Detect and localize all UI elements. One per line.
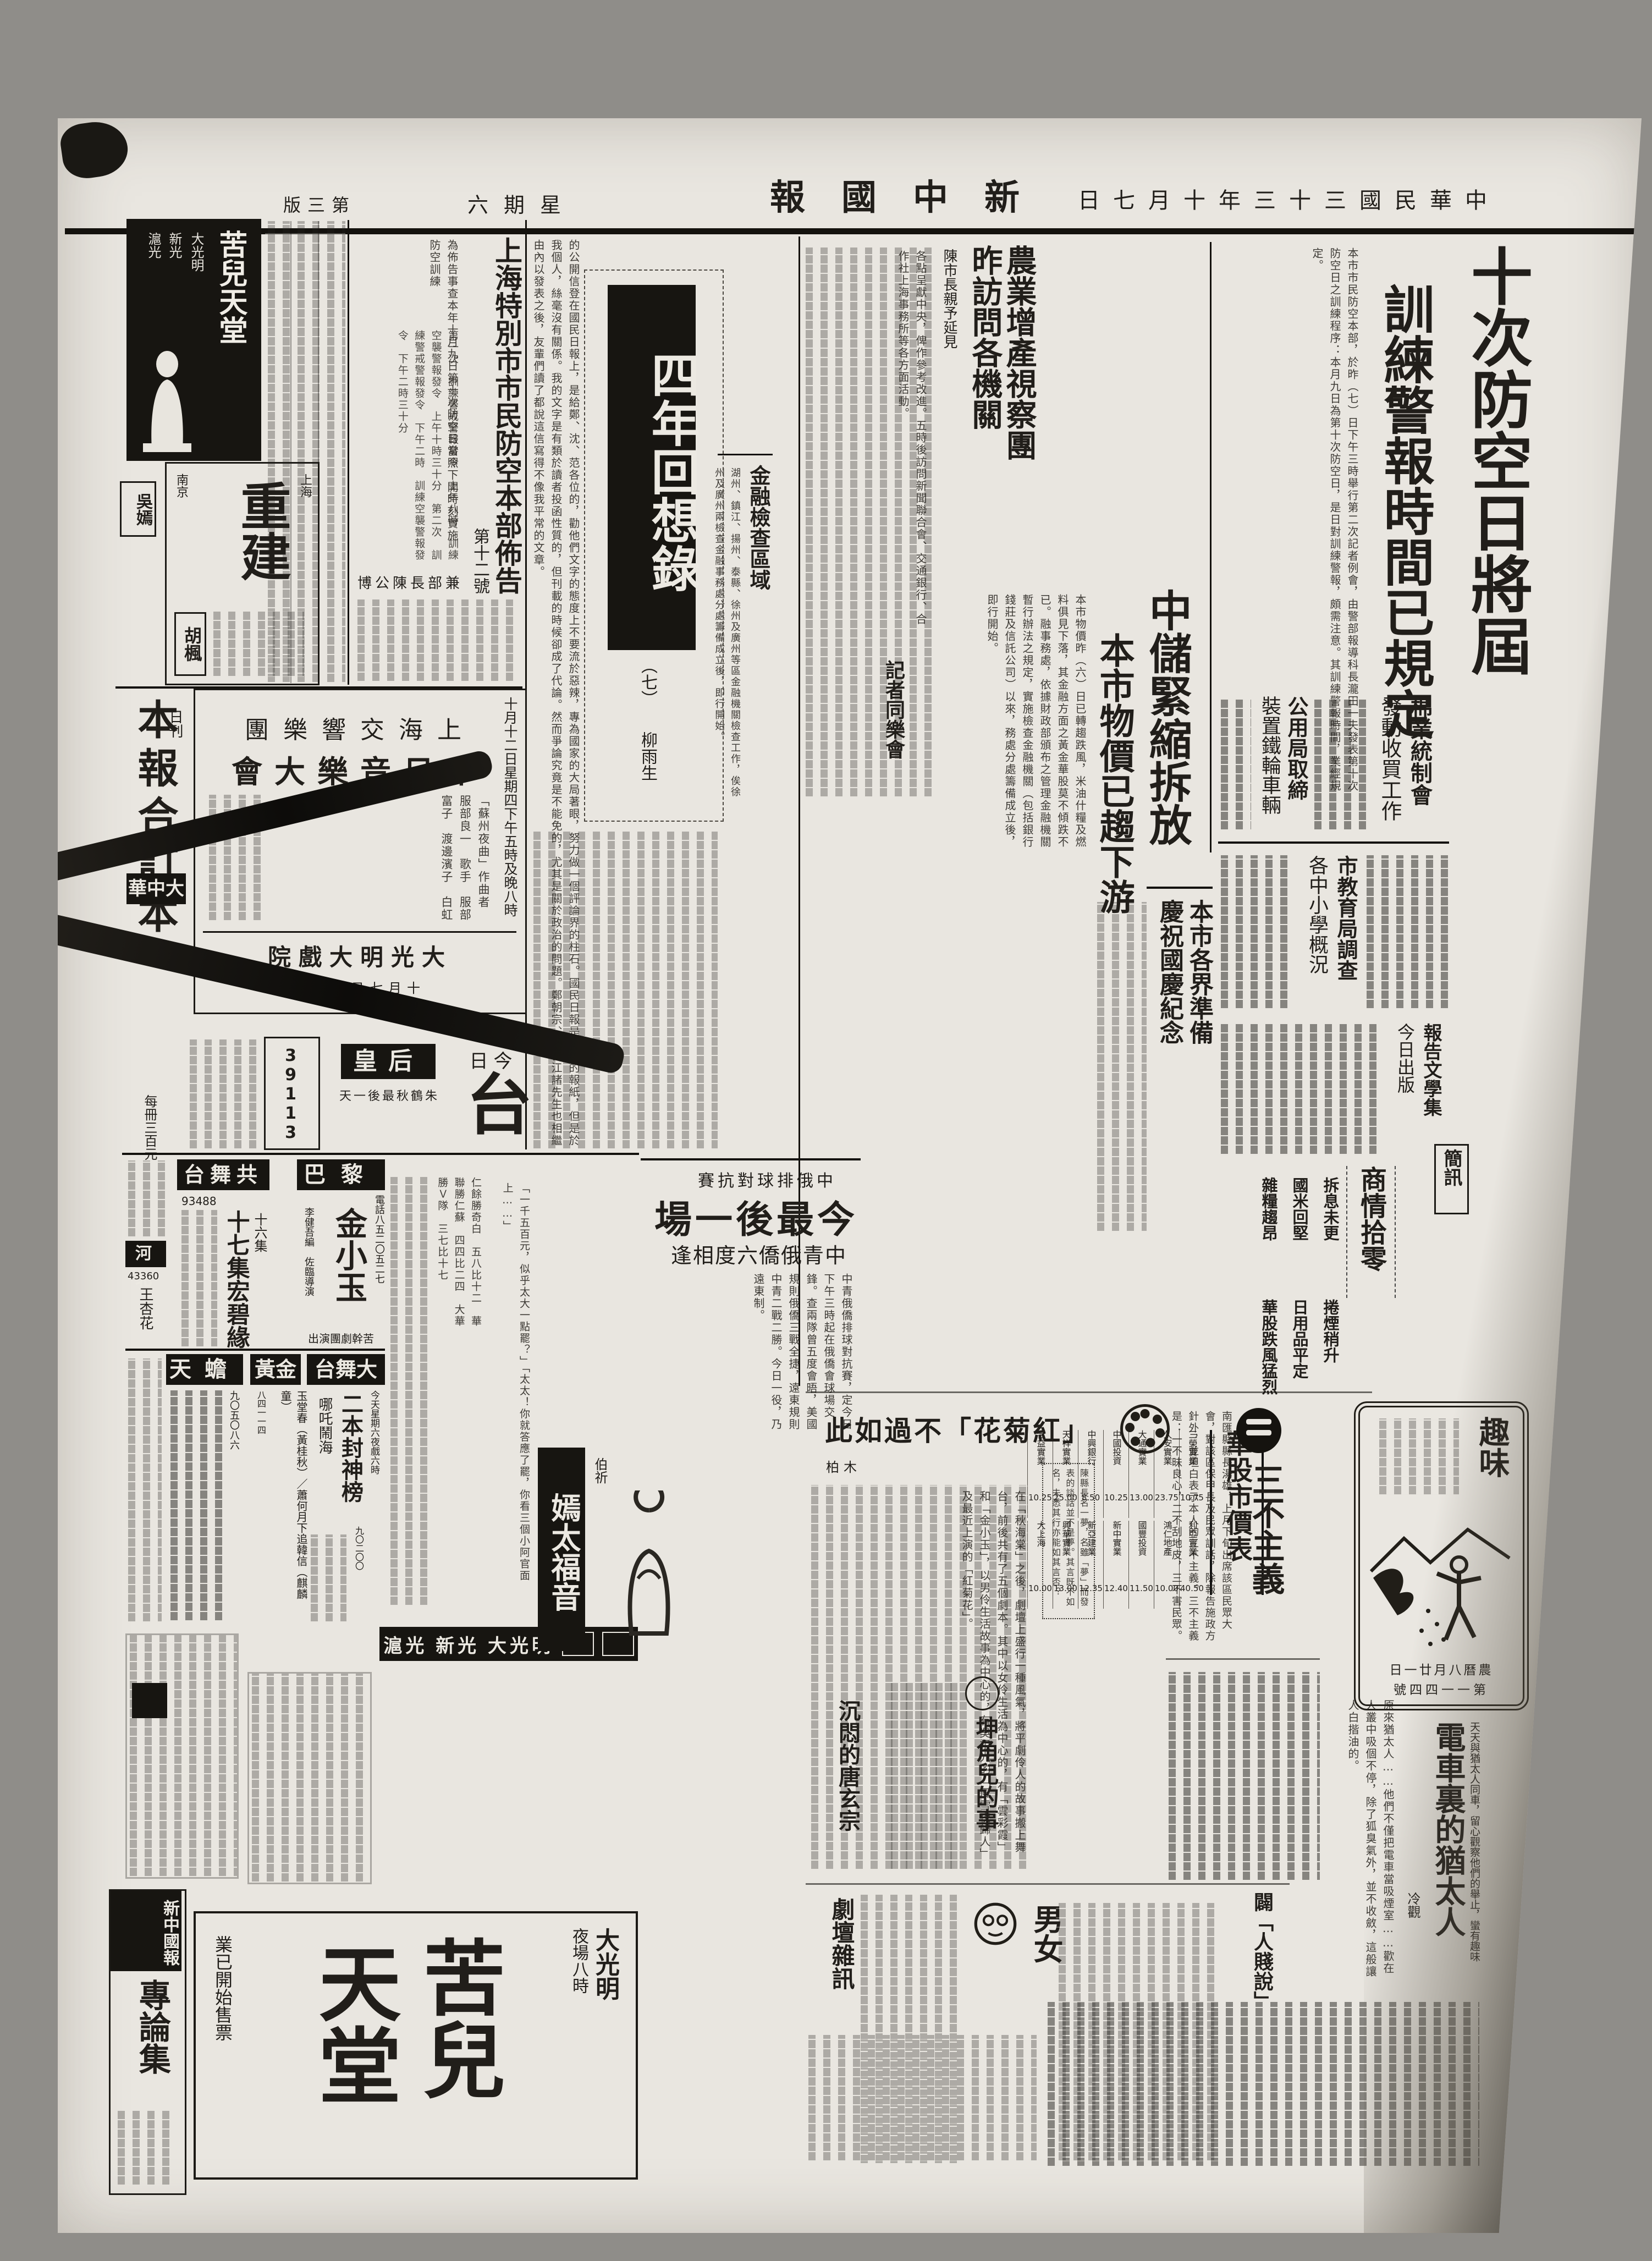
hebei-label: 河北: [125, 1241, 166, 1267]
stock-row: 國豐投資11.50: [1128, 1521, 1154, 1609]
market-item: 國米回堅: [1288, 1177, 1311, 1287]
chongjian-texture: [211, 611, 304, 677]
ad-texture: [125, 1160, 165, 1237]
section-rule: [806, 1391, 1372, 1393]
concert-rule: [203, 931, 516, 933]
section-rule: [806, 1883, 1290, 1885]
bottom-movie-theater: 大光明: [587, 1928, 623, 2016]
dawutai-label: 台舞大: [307, 1354, 385, 1385]
memoir-title: 四年回想錄: [608, 285, 696, 650]
corner-ink-stain: [58, 118, 131, 181]
paris-play: 金小玉: [326, 1207, 372, 1323]
actress-illustration: [134, 344, 200, 454]
section-rule: [125, 1349, 385, 1351]
market-item: 拆息未更: [1319, 1177, 1342, 1287]
torn-edge-shadow: [1364, 522, 1642, 2233]
zhuanlunji-ad: 新中國報 專論集: [109, 1889, 186, 2195]
serial-illustration: [605, 1490, 693, 1644]
stock-name: 國豐投資: [1135, 1521, 1148, 1581]
section-rule: [122, 1153, 639, 1155]
stage-big-char: 台: [466, 1070, 521, 1142]
zhongchu-headline: 中儲緊縮拆放: [1143, 588, 1190, 880]
memoir-author: 柳雨生: [635, 731, 659, 803]
volleyball-subhead: 逢相度六僑俄青中: [663, 1239, 855, 1269]
section-rule: [718, 454, 773, 455]
memoir-part: （七）: [635, 657, 659, 723]
section-rule: [1166, 1658, 1320, 1660]
volleyball-scores: 仁餘勝奇白 五八比十二 華聯勝仁蘇 四四比二四 大華勝Ｖ隊 三七比十七: [434, 1177, 484, 1336]
zhuanlunji-title: 專論集: [129, 1979, 175, 2105]
star-card-hufeng: 胡楓: [174, 612, 206, 676]
queen-theater-label: 皇后: [341, 1044, 436, 1079]
paris-label: 巴黎: [297, 1159, 385, 1190]
tianchan-label: 天蟾: [166, 1354, 243, 1385]
zhuanlunji-texture: [115, 2111, 177, 2186]
bottom-texture: [806, 2035, 1037, 2161]
movie-ad-title: 苦兒天堂: [210, 230, 251, 384]
paris-troupe-line: 出演團劇幹苦: [297, 1330, 385, 1346]
cinema-strip: 滬光新光大光明: [379, 1627, 638, 1661]
section-rule: [641, 1158, 861, 1160]
serial-title: 嫣太福音: [538, 1448, 585, 1651]
tianchan-phone: 九〇五〇八六: [227, 1390, 241, 1473]
ad-black-box: [132, 1683, 167, 1718]
ad-texture: [187, 1039, 258, 1149]
movie-ad-theater-1: 大光明: [187, 232, 206, 298]
volleyball-kicker: 賽抗對球排俄中: [679, 1167, 855, 1191]
brief-utility-title: 公用局取締: [1281, 696, 1312, 822]
section-rule: [1147, 887, 1213, 889]
press-party-title: 記者同樂會: [879, 660, 907, 792]
column-rule: [1210, 242, 1212, 852]
kunjue-texture: [888, 1683, 965, 1870]
stock-price: 13.00: [1130, 1493, 1153, 1503]
star-card-wuyan: 吳嫣: [120, 481, 156, 537]
huangjin-label: 黃金: [250, 1354, 301, 1385]
ad-texture: [308, 1534, 346, 1622]
note-text: 陳縣長名一夢，名雖「夢」而發表的談話並不是夢。其言既不如名，未悉其行亦能如其言否…: [1047, 1468, 1091, 1614]
market-item-list: 拆息未更國米回堅雜糧趨昂捲煙稍升日用品平定華股跌風猛烈: [1232, 1177, 1342, 1413]
gongwutai-phone: 93488: [181, 1195, 217, 1208]
huangjin-phone: 八四一一四: [254, 1390, 267, 1478]
column-logo: [1236, 1408, 1281, 1453]
masthead-weekday: 六期星: [467, 188, 599, 218]
brief-body-texture: [1218, 855, 1295, 1009]
movie-ad-kuertiantang: 苦兒天堂 大光明 新光 滬光: [126, 219, 261, 461]
chongjian-city-left: 南京: [172, 474, 190, 529]
car-hire-phone: 39113: [281, 1046, 300, 1140]
gongwutai-texture: [179, 1210, 217, 1347]
ad-texture-box: [247, 1672, 372, 1884]
movie-ad-chongjian: 重建 上海 南京 胡楓: [165, 462, 320, 685]
chongjian-city-right: 上海: [296, 474, 313, 529]
memoir-texture: [531, 830, 718, 1149]
agri-deck: 陳市長親予延見: [939, 249, 960, 469]
nannv-texture: [1056, 1903, 1221, 2161]
kunjue-icon: [965, 1676, 999, 1710]
hebei-star: 王杏花: [135, 1287, 156, 1347]
brief-body-texture: [1218, 1023, 1383, 1155]
movie-ad-theater-3: 滬光: [144, 232, 163, 287]
huangjin-plays: 玉堂春（黃桂秋）／蕭何月下追韓信（麒麟童）: [278, 1390, 310, 1610]
bottom-movie-time: 夜場八時: [566, 1928, 591, 2016]
fincheck-title: 金融檢查區域: [744, 465, 774, 619]
national-day-subtitle: 慶祝國慶紀念: [1152, 899, 1187, 1064]
sanbu-title: 三不主義: [1242, 1463, 1290, 1622]
market-item: 雜糧趨昂: [1257, 1177, 1280, 1287]
ad-texture-box: [125, 1633, 239, 1879]
zhongchu-body: 本市物價昨（六）日已轉趨跌風，米油什糧及燃料俱見下落，其金融方面之黃金華股莫不傾…: [1015, 594, 1089, 858]
zhuanlunji-brand: 新中國報: [111, 1891, 181, 1971]
chrysanthemum-icon: [1117, 1401, 1172, 1456]
brief-body-texture: [1312, 698, 1372, 830]
paris-credits: 李健吾編 佐臨導演: [301, 1207, 316, 1317]
newspaper-sheet: 日七月十年三十三國民華中 報國中新 六期星 版三第 十次防空日將屆 訓練警報時間…: [58, 118, 1642, 2233]
benbao-ad-note: 日刊: [165, 709, 185, 770]
dawutai-play2: 哪吒鬧海: [315, 1397, 335, 1474]
movie-ad-theater-2: 新光: [165, 232, 184, 287]
face-icon: [972, 1901, 1018, 1947]
masthead-title: 報國中新: [770, 169, 1067, 222]
serial-texture: [388, 1177, 432, 1606]
paris-phone: 電話八五二〇五二七: [372, 1195, 386, 1299]
stock-price: 12.40: [1104, 1583, 1128, 1593]
brief-education-subtitle: 各中小學概況: [1302, 855, 1331, 998]
chongjian-title: 重建: [225, 480, 298, 601]
gongwutai-label: 台舞共: [177, 1159, 269, 1190]
stock-name: 新中實業: [1110, 1521, 1123, 1581]
dawutai-time: 今天星期六夜戲六時: [367, 1390, 381, 1517]
zhongchu-subhead: 本市物價已趨下游: [1093, 632, 1134, 995]
bottom-movie-note: 業已開始售票: [210, 1935, 235, 2089]
agri-subhead: 昨訪問各機關: [962, 245, 1007, 553]
pi-title: 闢「人賤說」: [1247, 1892, 1276, 2035]
gongwutai-line: 十六集: [250, 1213, 269, 1279]
serial-body: 「一千五百元，似乎太大一點罷？」「太太！你就答應了罷，你看三個小阿官面上……」: [484, 1182, 532, 1617]
bottom-movie-title-right: 苦兒: [416, 1935, 498, 2150]
column-rule: [348, 220, 349, 685]
stock-price: 11.50: [1130, 1583, 1153, 1593]
tianchan-texture: [168, 1390, 223, 1621]
hebei-phone: 43360: [128, 1270, 159, 1282]
kunjue-title: 坤角兒的事: [969, 1716, 1003, 1859]
queen-tagline: 天一後最秋鶴朱: [329, 1086, 450, 1104]
dazhonghua-ad: 華中大: [126, 873, 186, 904]
volleyball-headline: 場一後最今: [652, 1189, 861, 1244]
agri-body: 各點呈獻中央，俾作參考改進。五時後訪問新聞聯合會、交通銀行、合作社上海事務所等各…: [814, 250, 929, 635]
concert-org: 團樂響交海上: [228, 710, 492, 745]
cinema-strip-name: 新光: [436, 1631, 480, 1658]
bulletin-signer: 博公陳長部兼: [357, 572, 511, 592]
brief-education-title: 市教育局調查: [1331, 855, 1361, 998]
review-author: 柏木: [826, 1456, 861, 1476]
review-headline: 此如過不「花菊紅」: [825, 1409, 1111, 1449]
brief-utility-subtitle: 裝置鐵輪車輛: [1255, 696, 1284, 839]
bottom-movie-title-left: 天堂: [311, 1941, 394, 2155]
cinema-strip-name: 滬光: [383, 1631, 427, 1658]
dawutai-phone: 九〇二〇〇: [352, 1526, 365, 1598]
car-hire-ad: 39113: [264, 1037, 320, 1150]
movie-ad-bottom: 大光明 夜場八時 苦兒 天堂 業已開始售票: [194, 1911, 638, 2180]
brief-body-texture: [1218, 698, 1251, 830]
ad-texture: [125, 1358, 162, 1622]
dawutai-play: 二本封神榜: [334, 1393, 366, 1519]
stock-price: 10.25: [1104, 1493, 1128, 1503]
bulletin-schedule: 第一次 訓練警戒警報發令 上午八時 訓練空襲警報發令 上午十時三十分 第二次 訓…: [356, 330, 461, 566]
bulletin-texture: [355, 599, 514, 682]
drama-news-title: 劇壇雜訊: [825, 1897, 858, 2018]
sanbu-body: 南匯縣縣長湯雄，上月下旬出席該區民眾大會，對該區保甲長及民眾訓話，除報告施政方針…: [1169, 1411, 1235, 1647]
note-box: 陳縣長名一夢，名雖「夢」而發表的談話並不是夢。其言既不如名，未悉其行亦能如其言否…: [1042, 1463, 1095, 1619]
tang-title: 沉悶的唐玄宗: [831, 1699, 863, 1864]
stock-row: 新中實業12.40: [1103, 1521, 1128, 1609]
masthead-date: 日七月十年三十三國民華中: [1078, 183, 1633, 214]
masthead-page-number: 版三第: [283, 191, 371, 217]
gongwutai-play: 十七集宏碧緣: [220, 1210, 254, 1369]
